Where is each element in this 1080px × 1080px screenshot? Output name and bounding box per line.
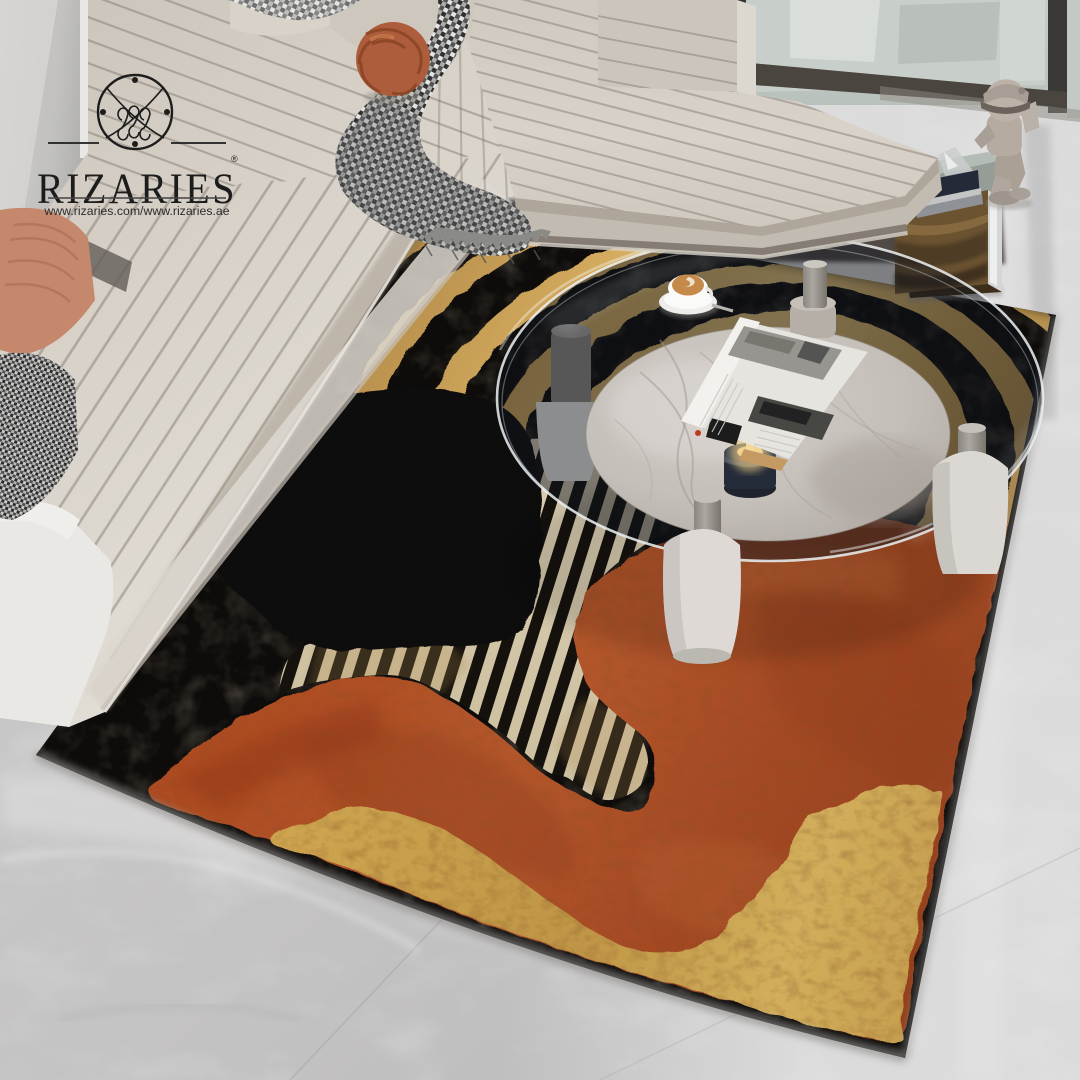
svg-text:www.rizaries.com/www.rizaries.: www.rizaries.com/www.rizaries.ae — [43, 204, 229, 218]
svg-text:®: ® — [231, 154, 238, 164]
